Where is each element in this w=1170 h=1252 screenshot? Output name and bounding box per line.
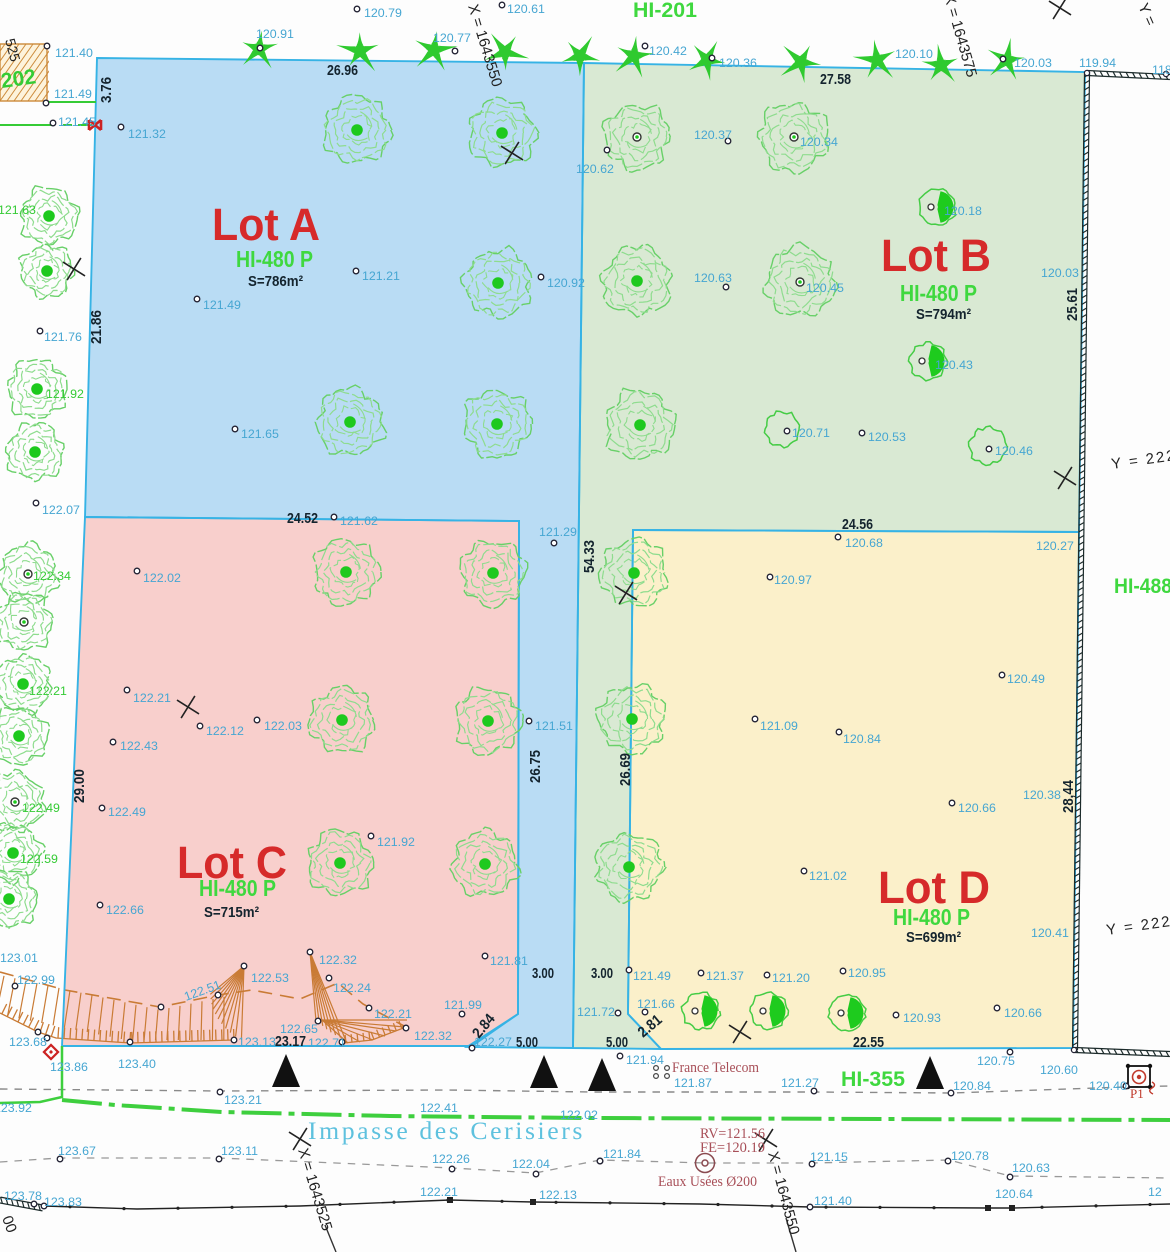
svg-text:121.40: 121.40 — [55, 46, 93, 60]
svg-text:122.53: 122.53 — [251, 971, 289, 985]
svg-text:120.66: 120.66 — [1004, 1006, 1042, 1020]
svg-text:120.49: 120.49 — [1007, 672, 1045, 686]
svg-text:120.43: 120.43 — [935, 358, 973, 372]
svg-text:120.84: 120.84 — [953, 1079, 991, 1093]
svg-text:120.92: 120.92 — [547, 276, 585, 290]
svg-text:120.37: 120.37 — [694, 128, 732, 142]
svg-text:22.55: 22.55 — [853, 1034, 884, 1051]
svg-text:120.40: 120.40 — [1089, 1079, 1127, 1093]
svg-text:123.86: 123.86 — [50, 1060, 88, 1074]
svg-text:120.71: 120.71 — [792, 426, 830, 440]
svg-text:118.: 118. — [1152, 63, 1170, 77]
svg-text:26.69: 26.69 — [617, 753, 634, 786]
svg-text:FE=120.19: FE=120.19 — [700, 1140, 765, 1156]
svg-text:122.13: 122.13 — [539, 1188, 577, 1202]
svg-text:120.36: 120.36 — [719, 56, 757, 70]
svg-text:120.91: 120.91 — [256, 27, 294, 41]
svg-text:121.29: 121.29 — [539, 525, 577, 539]
svg-text:119.94: 119.94 — [1079, 56, 1116, 70]
svg-text:120.60: 120.60 — [1040, 1063, 1078, 1077]
svg-text:122.49: 122.49 — [108, 805, 146, 819]
svg-text:120.75: 120.75 — [977, 1054, 1015, 1068]
svg-text:121.27: 121.27 — [781, 1076, 819, 1090]
svg-text:121.92: 121.92 — [377, 835, 415, 849]
svg-text:120.97: 120.97 — [774, 573, 812, 587]
svg-text:120.63: 120.63 — [1012, 1161, 1050, 1175]
svg-text:27.58: 27.58 — [820, 71, 851, 88]
svg-text:121.02: 121.02 — [809, 869, 847, 883]
svg-text:21.86: 21.86 — [88, 310, 105, 344]
svg-text:122.07: 122.07 — [42, 503, 80, 517]
svg-text:121.20: 121.20 — [772, 971, 810, 985]
svg-text:122.26: 122.26 — [432, 1152, 470, 1166]
svg-text:121.63: 121.63 — [0, 203, 36, 217]
svg-text:HI-355: HI-355 — [841, 1068, 905, 1091]
svg-text:123.11: 123.11 — [221, 1144, 258, 1158]
svg-text:121.99: 121.99 — [444, 998, 482, 1012]
svg-text:12: 12 — [1148, 1185, 1162, 1199]
svg-text:Lot B: Lot B — [881, 230, 991, 281]
svg-text:122.24: 122.24 — [333, 981, 371, 995]
svg-text:122.32: 122.32 — [319, 953, 357, 967]
svg-text:122.59: 122.59 — [20, 852, 58, 866]
svg-text:120.93: 120.93 — [903, 1011, 941, 1025]
svg-text:120.62: 120.62 — [576, 162, 614, 176]
svg-text:123.01: 123.01 — [0, 951, 38, 965]
svg-text:121.45: 121.45 — [58, 115, 96, 129]
svg-text:120.03: 120.03 — [1041, 266, 1079, 280]
svg-text:122.12: 122.12 — [206, 724, 244, 738]
svg-text:120.46: 120.46 — [995, 444, 1033, 458]
svg-text:122.32: 122.32 — [414, 1029, 452, 1043]
svg-text:123.21: 123.21 — [224, 1093, 262, 1107]
svg-text:120.68: 120.68 — [845, 536, 883, 550]
svg-text:122.66: 122.66 — [106, 903, 144, 917]
svg-text:121.65: 121.65 — [241, 427, 279, 441]
svg-text:121.37: 121.37 — [706, 969, 744, 983]
svg-text:121.81: 121.81 — [490, 954, 528, 968]
svg-text:122.02: 122.02 — [143, 571, 181, 585]
svg-text:29.00: 29.00 — [71, 769, 88, 803]
svg-text:120.78: 120.78 — [951, 1149, 989, 1163]
svg-text:121.32: 121.32 — [128, 127, 166, 141]
svg-text:120.41: 120.41 — [1031, 926, 1069, 940]
svg-text:121.49: 121.49 — [203, 298, 241, 312]
svg-text:S=699m²: S=699m² — [906, 929, 961, 946]
svg-text:121.15: 121.15 — [810, 1150, 848, 1164]
svg-text:HI-480 P: HI-480 P — [236, 246, 313, 272]
svg-text:121.66: 121.66 — [637, 997, 675, 1011]
svg-text:121.72: 121.72 — [577, 1005, 615, 1019]
svg-text:120.27: 120.27 — [1036, 539, 1074, 553]
svg-text:121.87: 121.87 — [674, 1076, 712, 1090]
svg-text:Lot A: Lot A — [212, 199, 320, 250]
svg-text:121.49: 121.49 — [633, 969, 671, 983]
svg-text:24.56: 24.56 — [842, 516, 873, 533]
svg-text:120.66: 120.66 — [958, 801, 996, 815]
svg-text:123.13: 123.13 — [238, 1035, 276, 1049]
svg-text:121.51: 121.51 — [535, 719, 573, 733]
svg-text:122.49: 122.49 — [22, 801, 60, 815]
svg-text:120.18: 120.18 — [944, 204, 982, 218]
svg-text:123.92: 123.92 — [0, 1101, 32, 1115]
svg-text:120.61: 120.61 — [507, 2, 545, 16]
svg-text:23.17: 23.17 — [275, 1033, 306, 1050]
svg-text:P1: P1 — [1130, 1086, 1144, 1101]
svg-text:121.62: 121.62 — [340, 514, 378, 528]
svg-text:120.84: 120.84 — [843, 732, 881, 746]
svg-text:France Telecom: France Telecom — [672, 1060, 759, 1076]
svg-text:121.76: 121.76 — [44, 330, 82, 344]
svg-text:Impasse des Cerisiers: Impasse des Cerisiers — [308, 1118, 585, 1145]
svg-text:120.79: 120.79 — [364, 6, 402, 20]
svg-text:HI-480 P: HI-480 P — [900, 280, 977, 306]
svg-text:S=715m²: S=715m² — [204, 904, 259, 921]
svg-text:121.49: 121.49 — [54, 87, 92, 101]
svg-text:122.71: 122.71 — [308, 1036, 346, 1050]
svg-text:121.92: 121.92 — [46, 387, 84, 401]
svg-text:122.03: 122.03 — [264, 719, 302, 733]
svg-text:120.10: 120.10 — [895, 47, 933, 61]
svg-text:123.83: 123.83 — [44, 1195, 82, 1209]
svg-text:122.43: 122.43 — [120, 739, 158, 753]
svg-text:HI-480 P: HI-480 P — [893, 904, 970, 930]
svg-text:122.21: 122.21 — [374, 1007, 412, 1021]
svg-text:122.21: 122.21 — [29, 684, 67, 698]
svg-text:122.99: 122.99 — [17, 973, 55, 987]
svg-text:121.94: 121.94 — [626, 1053, 664, 1067]
svg-text:122.04: 122.04 — [512, 1157, 550, 1171]
svg-text:123.40: 123.40 — [118, 1057, 156, 1071]
svg-text:26.96: 26.96 — [327, 62, 358, 79]
svg-text:S=794m²: S=794m² — [916, 306, 971, 323]
svg-text:3.00: 3.00 — [532, 965, 554, 982]
svg-text:26.75: 26.75 — [527, 750, 544, 783]
svg-text:122.34: 122.34 — [33, 569, 71, 583]
svg-text:120.63: 120.63 — [694, 271, 732, 285]
svg-text:202: 202 — [0, 65, 37, 93]
svg-text:120.45: 120.45 — [806, 281, 844, 295]
svg-text:24.52: 24.52 — [287, 510, 318, 527]
svg-text:121.09: 121.09 — [760, 719, 798, 733]
svg-text:5.00: 5.00 — [606, 1034, 628, 1051]
svg-text:123.78: 123.78 — [4, 1189, 42, 1203]
svg-text:HI-488: HI-488 — [1114, 575, 1170, 598]
svg-text:S=786m²: S=786m² — [248, 273, 303, 290]
svg-text:121.21: 121.21 — [362, 269, 400, 283]
svg-text:121.84: 121.84 — [603, 1147, 641, 1161]
svg-text:28,44: 28,44 — [1060, 779, 1077, 813]
svg-text:122.41: 122.41 — [420, 1101, 458, 1115]
svg-text:HI-201: HI-201 — [633, 0, 697, 22]
svg-text:120.34: 120.34 — [800, 135, 838, 149]
svg-text:Eaux Usées Ø200: Eaux Usées Ø200 — [658, 1174, 757, 1190]
svg-text:120.95: 120.95 — [848, 966, 886, 980]
svg-text:120.03: 120.03 — [1014, 56, 1052, 70]
svg-text:120.42: 120.42 — [649, 44, 687, 58]
svg-text:120.53: 120.53 — [868, 430, 906, 444]
svg-text:25.61: 25.61 — [1064, 288, 1081, 321]
svg-text:122.21: 122.21 — [133, 691, 171, 705]
svg-text:121.40: 121.40 — [814, 1194, 852, 1208]
svg-text:3.00: 3.00 — [591, 965, 613, 982]
svg-text:5.00: 5.00 — [516, 1034, 538, 1051]
svg-text:HI-480 P: HI-480 P — [199, 875, 276, 901]
svg-text:54.33: 54.33 — [581, 540, 598, 573]
svg-text:120.64: 120.64 — [995, 1187, 1033, 1201]
svg-text:120.38: 120.38 — [1023, 788, 1061, 802]
svg-text:3.76: 3.76 — [98, 77, 115, 103]
svg-text:122.21: 122.21 — [420, 1185, 458, 1199]
svg-text:123.67: 123.67 — [58, 1144, 96, 1158]
svg-text:120.77: 120.77 — [433, 31, 471, 45]
svg-text:123.68: 123.68 — [9, 1035, 47, 1049]
